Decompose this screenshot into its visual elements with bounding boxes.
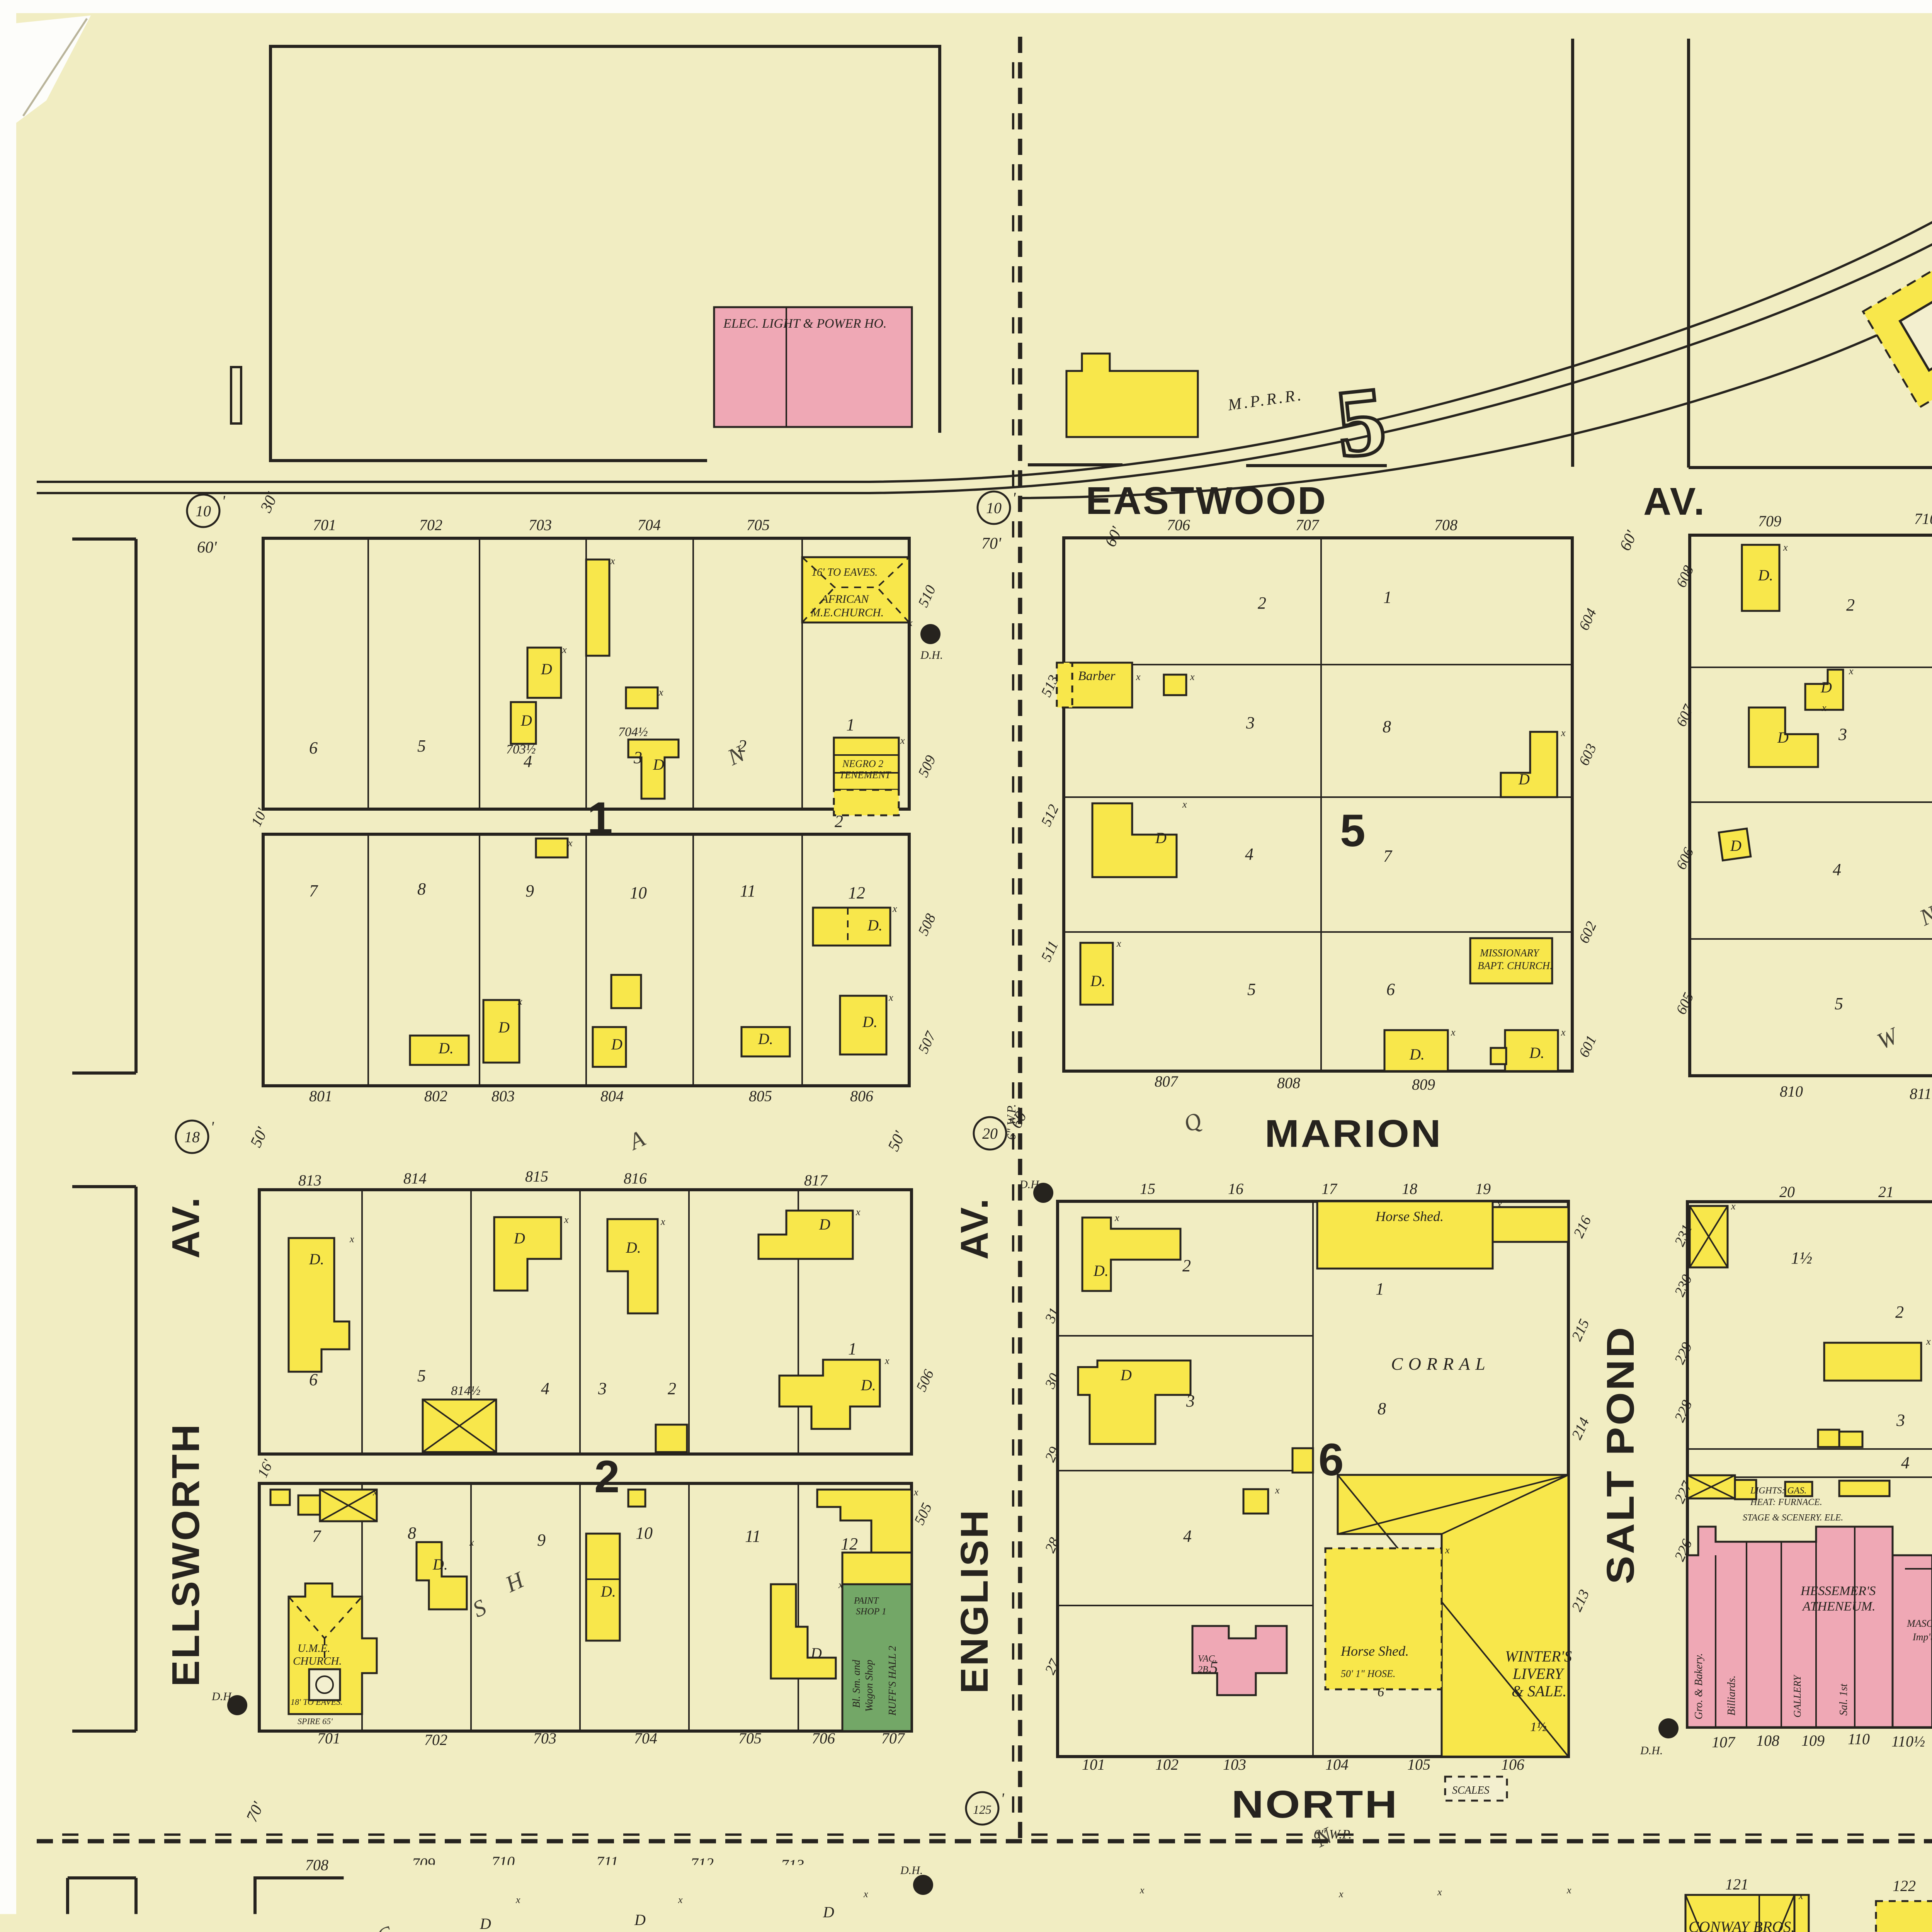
svg-text:801: 801: [309, 1087, 332, 1105]
svg-text:113: 113: [1105, 1865, 1127, 1882]
svg-text:8: 8: [1378, 1399, 1386, 1418]
svg-text:3: 3: [633, 748, 642, 767]
svg-text:x: x: [1783, 542, 1788, 553]
svg-text:17: 17: [1321, 1180, 1338, 1197]
svg-text:AV.: AV.: [1643, 480, 1706, 523]
svg-text:x: x: [562, 644, 567, 655]
svg-text:2: 2: [1258, 594, 1266, 612]
svg-text:701: 701: [313, 516, 336, 534]
svg-text:5: 5: [1340, 805, 1366, 856]
svg-text:709: 709: [412, 1855, 435, 1872]
svg-text:706: 706: [812, 1730, 835, 1747]
svg-text:D: D: [819, 1216, 830, 1233]
svg-text:115: 115: [1238, 1865, 1260, 1882]
svg-text:3: 3: [598, 1379, 607, 1398]
svg-text:': ': [1012, 489, 1016, 507]
svg-text:D.H.: D.H.: [211, 1690, 234, 1703]
svg-text:707: 707: [881, 1730, 905, 1747]
svg-text:HESSEMER'S: HESSEMER'S: [1800, 1584, 1876, 1598]
svg-text:5: 5: [417, 736, 426, 755]
svg-text:104: 104: [1325, 1756, 1349, 1773]
svg-text:9: 9: [537, 1531, 546, 1549]
svg-text:11: 11: [745, 1527, 761, 1546]
svg-text:x: x: [1731, 1201, 1736, 1212]
svg-text:1: 1: [846, 715, 855, 734]
svg-text:809: 809: [1412, 1076, 1435, 1093]
svg-text:AV.: AV.: [953, 1197, 996, 1260]
svg-text:704: 704: [634, 1730, 657, 1747]
svg-text:x: x: [1139, 1884, 1145, 1896]
svg-text:814: 814: [403, 1170, 427, 1187]
svg-text:D.H.: D.H.: [920, 649, 943, 662]
svg-text:MISSIONARY: MISSIONARY: [1480, 947, 1540, 959]
svg-text:D.H.: D.H.: [1019, 1178, 1042, 1191]
svg-text:x: x: [838, 1579, 843, 1590]
svg-text:D.: D.: [758, 1030, 773, 1048]
svg-text:811: 811: [1910, 1085, 1932, 1102]
svg-text:Horse Shed.: Horse Shed.: [1340, 1643, 1409, 1659]
svg-text:x: x: [1275, 1485, 1280, 1496]
svg-text:6: 6: [1378, 1685, 1384, 1699]
svg-text:5: 5: [417, 1366, 426, 1385]
svg-text:D.: D.: [1409, 1046, 1425, 1063]
svg-text:709: 709: [1758, 512, 1781, 530]
svg-text:4: 4: [1901, 1453, 1910, 1472]
svg-text:SHOP 1: SHOP 1: [856, 1607, 886, 1617]
svg-text:D: D: [1777, 729, 1789, 746]
svg-text:x: x: [568, 837, 573, 849]
svg-text:MASONIC HALL 3P.: MASONIC HALL 3P.: [1906, 1618, 1932, 1629]
svg-text:9: 9: [526, 881, 534, 900]
svg-text:4: 4: [1183, 1527, 1192, 1546]
svg-text:x: x: [658, 687, 663, 698]
svg-text:D.: D.: [1529, 1044, 1544, 1061]
svg-text:4: 4: [1245, 845, 1253, 864]
svg-text:x: x: [517, 996, 522, 1007]
svg-text:x: x: [1114, 1212, 1119, 1223]
svg-text:16' TO EAVES.: 16' TO EAVES.: [811, 566, 878, 578]
svg-text:M.E.CHURCH.: M.E.CHURCH.: [810, 606, 884, 619]
svg-text:2: 2: [594, 1451, 620, 1502]
svg-text:Agric'l Imp'ts.: Agric'l Imp'ts.: [1456, 1902, 1535, 1918]
svg-text:ENGLISH: ENGLISH: [953, 1509, 996, 1694]
svg-text:D.: D.: [1093, 1262, 1109, 1279]
svg-text:21: 21: [1878, 1183, 1894, 1201]
svg-text:x: x: [1497, 1199, 1502, 1210]
svg-text:': ': [1001, 1790, 1005, 1807]
svg-text:101: 101: [1082, 1756, 1105, 1773]
svg-text:16: 16: [1228, 1180, 1243, 1197]
svg-text:& SALE.: & SALE.: [1512, 1682, 1566, 1700]
svg-text:x: x: [349, 1233, 354, 1245]
svg-text:LIVERY: LIVERY: [1512, 1665, 1565, 1682]
svg-text:108: 108: [1756, 1732, 1779, 1749]
svg-text:EASTWOOD: EASTWOOD: [1086, 479, 1327, 522]
svg-text:x: x: [1445, 1544, 1450, 1556]
svg-text:7: 7: [312, 1527, 321, 1546]
svg-text:x: x: [1190, 671, 1195, 682]
svg-text:814½: 814½: [451, 1384, 481, 1398]
svg-text:5: 5: [1835, 994, 1843, 1013]
svg-text:810: 810: [1780, 1083, 1803, 1100]
svg-text:118: 118: [1359, 1867, 1381, 1884]
svg-text:702: 702: [419, 516, 442, 534]
svg-text:20: 20: [1779, 1183, 1795, 1201]
svg-text:2: 2: [1895, 1303, 1904, 1321]
svg-text:D: D: [1730, 837, 1742, 854]
svg-text:D.: D.: [432, 1556, 448, 1573]
svg-text:x: x: [660, 1216, 665, 1227]
svg-text:8: 8: [408, 1524, 416, 1543]
svg-text:4: 4: [1833, 860, 1841, 879]
svg-text:103: 103: [1223, 1756, 1246, 1773]
svg-text:708: 708: [1434, 516, 1458, 534]
svg-text:x: x: [515, 1894, 520, 1905]
svg-text:D.: D.: [309, 1250, 324, 1268]
svg-text:D: D: [1120, 1366, 1132, 1384]
svg-text:x: x: [1116, 938, 1121, 949]
svg-text:117: 117: [1321, 1867, 1344, 1884]
svg-text:704: 704: [638, 516, 661, 534]
svg-text:U.M.E.: U.M.E.: [298, 1642, 330, 1655]
svg-text:D.H.: D.H.: [900, 1864, 923, 1877]
svg-text:Wagon Shop: Wagon Shop: [863, 1660, 875, 1712]
svg-text:SPIRE 65': SPIRE 65': [298, 1716, 333, 1726]
svg-text:704½: 704½: [618, 725, 648, 739]
svg-text:x: x: [469, 1537, 474, 1548]
svg-text:6: 6: [1386, 980, 1395, 999]
svg-text:D.H.: D.H.: [1640, 1744, 1663, 1757]
svg-text:D.: D.: [438, 1039, 454, 1057]
svg-text:D: D: [480, 1915, 491, 1932]
svg-text:816: 816: [624, 1170, 647, 1187]
svg-text:D.: D.: [1090, 972, 1105, 990]
svg-text:4: 4: [541, 1379, 549, 1398]
svg-text:PAINT: PAINT: [854, 1596, 879, 1606]
svg-text:705: 705: [738, 1730, 762, 1747]
svg-text:Barber: Barber: [1078, 669, 1116, 683]
svg-text:3: 3: [1896, 1411, 1905, 1430]
svg-text:6: 6: [309, 1370, 318, 1389]
svg-text:x: x: [913, 1486, 918, 1498]
svg-text:W.Ho.: W.Ho.: [1157, 1906, 1186, 1919]
svg-text:D: D: [1155, 829, 1167, 847]
svg-text:x: x: [900, 735, 905, 746]
svg-text:805: 805: [749, 1087, 772, 1105]
svg-text:70': 70': [981, 535, 1002, 553]
svg-text:WINTER'S: WINTER'S: [1505, 1648, 1572, 1665]
svg-text:CHURCH.: CHURCH.: [293, 1655, 342, 1667]
svg-text:20: 20: [982, 1125, 998, 1142]
svg-text:Billiards.: Billiards.: [1726, 1675, 1738, 1716]
svg-text:813: 813: [298, 1172, 321, 1189]
svg-text:GALLERY: GALLERY: [1792, 1674, 1803, 1718]
svg-text:703: 703: [533, 1730, 556, 1747]
svg-text:5: 5: [1247, 980, 1256, 999]
svg-text:1: 1: [1383, 588, 1392, 607]
svg-text:3: 3: [1186, 1391, 1195, 1410]
svg-text:110: 110: [1848, 1730, 1870, 1748]
svg-text:815: 815: [525, 1168, 548, 1185]
svg-text:D.: D.: [600, 1583, 616, 1600]
svg-text:121: 121: [1725, 1876, 1748, 1893]
svg-text:7: 7: [309, 881, 318, 900]
svg-text:BAPT. CHURCH.: BAPT. CHURCH.: [1478, 960, 1553, 971]
svg-text:D.: D.: [626, 1239, 641, 1256]
svg-text:AFRICAN: AFRICAN: [820, 593, 869, 605]
svg-text:SCALES: SCALES: [1641, 1915, 1651, 1932]
svg-text:102: 102: [1155, 1756, 1179, 1773]
svg-text:701: 701: [317, 1730, 340, 1747]
svg-text:ELLSWORTH: ELLSWORTH: [164, 1423, 207, 1687]
svg-text:D.: D.: [861, 1376, 876, 1394]
svg-text:8: 8: [417, 879, 426, 898]
svg-text:x: x: [1561, 1027, 1566, 1038]
svg-text:703: 703: [529, 516, 552, 534]
svg-text:808: 808: [1277, 1074, 1300, 1092]
svg-text:110½: 110½: [1891, 1733, 1925, 1750]
svg-text:711: 711: [596, 1853, 618, 1871]
svg-text:802: 802: [424, 1087, 447, 1105]
svg-text:710: 710: [492, 1853, 515, 1871]
svg-text:109: 109: [1801, 1732, 1825, 1749]
svg-text:x: x: [884, 1355, 889, 1366]
svg-text:18: 18: [1402, 1180, 1417, 1197]
svg-text:119: 119: [1401, 1867, 1423, 1884]
svg-text:ATHENEUM.: ATHENEUM.: [1802, 1599, 1876, 1614]
svg-text:712: 712: [690, 1855, 714, 1872]
svg-text:710: 710: [1914, 510, 1932, 527]
svg-text:5: 5: [1209, 1658, 1218, 1677]
svg-text:Gro. & Bakery.: Gro. & Bakery.: [1693, 1653, 1705, 1719]
svg-text:x: x: [1136, 671, 1141, 682]
svg-text:60': 60': [197, 539, 217, 556]
svg-text:Horse Shed.: Horse Shed.: [1375, 1209, 1444, 1224]
svg-text:x: x: [1926, 1336, 1931, 1347]
svg-text:7: 7: [1383, 847, 1393, 866]
svg-text:D: D: [1820, 679, 1832, 696]
svg-text:D.: D.: [862, 1013, 878, 1031]
svg-text:x: x: [372, 1486, 378, 1498]
svg-text:112: 112: [1063, 1865, 1085, 1882]
svg-text:Bl. Sm. and: Bl. Sm. and: [850, 1660, 862, 1708]
svg-text:702: 702: [424, 1731, 447, 1748]
svg-text:106: 106: [1501, 1756, 1524, 1773]
svg-text:Sal. 1st: Sal. 1st: [1838, 1683, 1850, 1716]
svg-text:122: 122: [1893, 1877, 1916, 1895]
svg-text:1: 1: [587, 793, 613, 844]
svg-text:AV.: AV.: [164, 1196, 207, 1259]
svg-text:1: 1: [1376, 1279, 1384, 1298]
svg-text:2: 2: [1182, 1256, 1191, 1275]
svg-text:x: x: [863, 1888, 868, 1900]
svg-text:120: 120: [1486, 1867, 1509, 1884]
svg-text:11: 11: [740, 881, 756, 900]
svg-text:Barber: Barber: [1351, 1921, 1363, 1932]
svg-text:2: 2: [1846, 595, 1855, 614]
svg-text:TENEMENT: TENEMENT: [839, 769, 891, 781]
svg-text:LIGHTS: GAS.: LIGHTS: GAS.: [1750, 1486, 1806, 1496]
svg-text:HEAT: FURNACE.: HEAT: FURNACE.: [1750, 1497, 1822, 1507]
svg-text:D: D: [498, 1019, 510, 1036]
svg-text:1½: 1½: [1791, 1248, 1812, 1267]
svg-text:12: 12: [848, 883, 865, 902]
svg-text:SCALES: SCALES: [1452, 1784, 1489, 1796]
svg-text:RUFF'S HALL 2: RUFF'S HALL 2: [886, 1646, 898, 1716]
svg-text:708: 708: [305, 1856, 328, 1874]
svg-text:2: 2: [835, 812, 843, 831]
svg-text:107: 107: [1712, 1733, 1736, 1751]
svg-text:NORTH: NORTH: [1231, 1783, 1399, 1826]
svg-text:807: 807: [1155, 1073, 1179, 1090]
svg-text:D: D: [634, 1911, 646, 1929]
svg-text:3: 3: [1838, 725, 1847, 744]
svg-text:x: x: [1821, 702, 1827, 713]
svg-text:D: D: [520, 712, 532, 729]
svg-text:19: 19: [1475, 1180, 1491, 1197]
svg-text:803: 803: [492, 1087, 515, 1105]
svg-text:713: 713: [781, 1856, 804, 1874]
svg-text:D: D: [611, 1036, 622, 1053]
svg-text:705: 705: [747, 516, 770, 534]
svg-text:D: D: [514, 1230, 525, 1247]
svg-text:x: x: [1561, 727, 1566, 738]
svg-text:D: D: [823, 1903, 834, 1921]
svg-text:D: D: [541, 660, 552, 678]
svg-text:CORRAL: CORRAL: [1391, 1354, 1491, 1374]
svg-text:18' TO EAVES.: 18' TO EAVES.: [291, 1697, 343, 1707]
svg-text:x: x: [564, 1214, 569, 1225]
svg-text:': ': [211, 1118, 214, 1136]
svg-text:x: x: [1338, 1888, 1344, 1900]
svg-text:10: 10: [630, 883, 647, 902]
svg-text:D.: D.: [1758, 566, 1773, 584]
svg-text:x: x: [1451, 1027, 1456, 1038]
svg-text:D.: D.: [810, 1645, 826, 1662]
svg-text:Imp'ts VI. R'm 2: Imp'ts VI. R'm 2: [1912, 1631, 1932, 1643]
svg-text:116: 116: [1283, 1865, 1305, 1882]
svg-text:806: 806: [850, 1087, 873, 1105]
svg-text:10: 10: [196, 502, 211, 520]
svg-text:707: 707: [1296, 516, 1320, 534]
svg-text:x: x: [1798, 1890, 1803, 1901]
svg-text:x: x: [1321, 1444, 1326, 1455]
svg-text:105: 105: [1407, 1756, 1430, 1773]
svg-text:12: 12: [841, 1534, 858, 1553]
svg-text:6: 6: [309, 738, 318, 757]
svg-text:NEGRO 2: NEGRO 2: [842, 758, 883, 769]
svg-text:ELEC. LIGHT & POWER HO.: ELEC. LIGHT & POWER HO.: [723, 316, 887, 331]
svg-text:804: 804: [600, 1087, 624, 1105]
svg-text:817: 817: [804, 1172, 828, 1189]
svg-text:D: D: [653, 756, 664, 773]
svg-text:706: 706: [1167, 516, 1190, 534]
svg-text:125: 125: [973, 1803, 992, 1816]
svg-text:x: x: [908, 617, 913, 628]
svg-text:114: 114: [1175, 1867, 1197, 1884]
svg-text:STAGE & SCENERY. ELE.: STAGE & SCENERY. ELE.: [1743, 1513, 1843, 1523]
svg-text:x: x: [678, 1894, 683, 1905]
svg-text:x: x: [855, 1206, 861, 1218]
svg-text:1: 1: [848, 1339, 857, 1358]
svg-text:10: 10: [986, 499, 1002, 517]
svg-text:MARION: MARION: [1265, 1112, 1442, 1155]
svg-text:3: 3: [1246, 713, 1255, 732]
svg-text:4: 4: [524, 752, 532, 771]
svg-text:CONWAY BROS.: CONWAY BROS.: [1689, 1918, 1795, 1932]
svg-text:x: x: [892, 903, 897, 914]
svg-text:': ': [222, 492, 226, 510]
svg-text:x: x: [1182, 799, 1187, 810]
svg-text:x: x: [888, 992, 893, 1003]
svg-text:2B.: 2B.: [1198, 1665, 1211, 1675]
svg-text:x: x: [610, 555, 615, 566]
svg-text:x: x: [1849, 665, 1854, 677]
svg-text:2: 2: [668, 1379, 676, 1398]
svg-text:15: 15: [1140, 1180, 1155, 1197]
svg-text:8: 8: [1383, 717, 1391, 736]
svg-text:10: 10: [636, 1524, 653, 1543]
svg-text:D.: D.: [867, 917, 883, 934]
svg-text:1½: 1½: [1530, 1720, 1547, 1734]
svg-text:D: D: [1518, 770, 1530, 788]
svg-text:50' 1" HOSE.: 50' 1" HOSE.: [1341, 1668, 1395, 1679]
svg-text:18: 18: [184, 1128, 200, 1146]
svg-text:x: x: [1566, 1884, 1571, 1896]
svg-text:SALT POND: SALT POND: [1599, 1325, 1642, 1584]
svg-text:x: x: [1437, 1886, 1442, 1898]
